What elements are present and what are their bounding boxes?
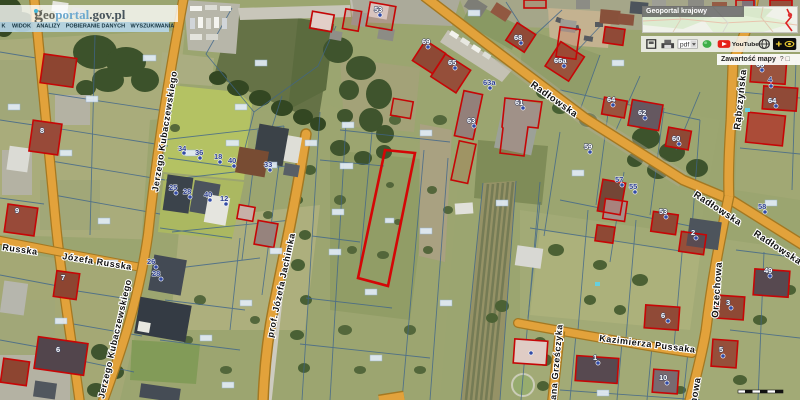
svg-text:YouTube: YouTube [732, 41, 760, 48]
svg-text:64: 64 [607, 95, 616, 104]
svg-text:55: 55 [629, 182, 637, 191]
svg-text:40: 40 [228, 156, 236, 165]
svg-text:62: 62 [638, 108, 646, 117]
svg-text:6: 6 [56, 345, 60, 354]
svg-text:61: 61 [515, 98, 523, 107]
svg-text:40: 40 [204, 190, 212, 199]
svg-text:36: 36 [195, 148, 203, 157]
svg-text:28: 28 [152, 269, 160, 278]
svg-text:5: 5 [719, 345, 723, 354]
svg-text:59: 59 [584, 142, 592, 151]
svg-text:8: 8 [40, 126, 44, 135]
svg-text:66a: 66a [554, 56, 567, 65]
svg-text:26: 26 [147, 257, 155, 266]
svg-text:49: 49 [764, 266, 772, 275]
svg-text:6: 6 [661, 311, 665, 320]
svg-text:65: 65 [448, 58, 456, 67]
svg-text:3: 3 [726, 298, 730, 307]
svg-text:63: 63 [467, 116, 475, 125]
svg-text:60: 60 [672, 134, 680, 143]
svg-text:7: 7 [61, 273, 65, 282]
svg-text:12: 12 [220, 194, 228, 203]
svg-text:68: 68 [514, 33, 522, 42]
svg-text:9: 9 [15, 206, 19, 215]
svg-text:53: 53 [374, 5, 382, 14]
svg-text:63a: 63a [483, 78, 496, 87]
svg-text:pdf: pdf [680, 42, 690, 49]
svg-text:25: 25 [169, 183, 177, 192]
svg-text:58: 58 [758, 202, 766, 211]
svg-text:53: 53 [659, 207, 667, 216]
svg-text:2: 2 [691, 228, 695, 237]
svg-text:64: 64 [768, 96, 777, 105]
svg-text:10: 10 [659, 373, 667, 382]
svg-text:1: 1 [593, 353, 597, 362]
svg-text:33: 33 [264, 160, 272, 169]
svg-text:69: 69 [422, 37, 430, 46]
svg-text:57: 57 [615, 175, 623, 184]
svg-text:18: 18 [214, 152, 222, 161]
svg-text:34: 34 [178, 144, 187, 153]
svg-text:28: 28 [183, 187, 191, 196]
